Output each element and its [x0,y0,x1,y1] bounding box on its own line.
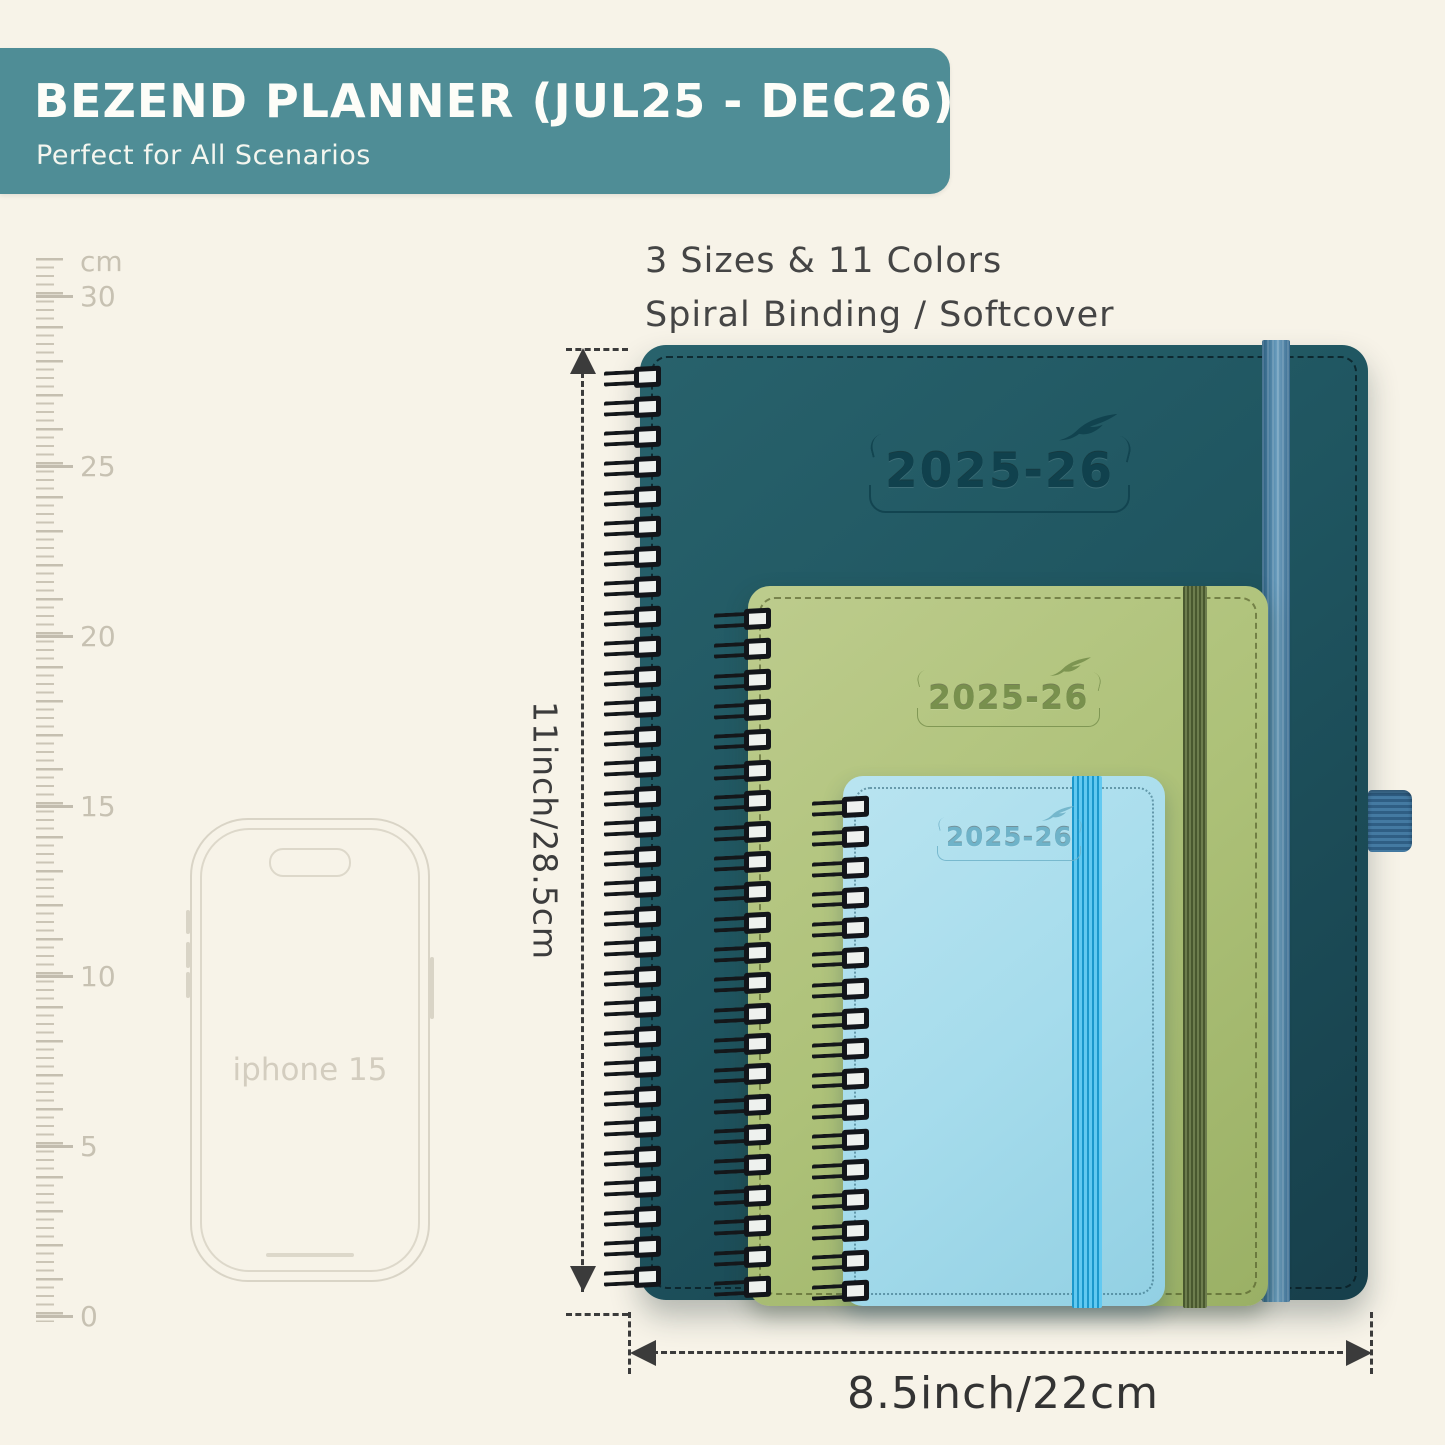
spiral-coil [812,1097,874,1122]
phone-label: iphone 15 [202,1052,418,1088]
spiral-coil [714,819,776,844]
spiral-coil [812,1006,874,1031]
width-arrow-left-icon [630,1340,656,1366]
height-dimension-cap-bottom [566,1313,628,1316]
ruler-label-10: 10 [80,961,150,993]
planner-logo-large: 2025-26 [885,444,1114,499]
spiral-coil [812,946,874,971]
spiral-coil [714,789,776,814]
spiral-coil [714,697,776,722]
spiral-coil [714,910,776,935]
feature-line-binding: Spiral Binding / Softcover [645,288,1115,342]
spiral-coil [812,1127,874,1152]
spiral-coil [604,934,666,959]
spiral-coil [812,1036,874,1061]
spiral-coil [604,694,666,719]
spiral-coil [604,1114,666,1139]
spiral-coil [714,1244,776,1269]
logo-bracket [869,485,1130,513]
spiral-coil [604,724,666,749]
spiral-coil [812,915,874,940]
product-infographic: BEZEND PLANNER (JUL25 - DEC26) Perfect f… [0,0,1445,1445]
spiral-coil [604,1264,666,1289]
spiral-coil [604,1234,666,1259]
width-dimension-label: 8.5inch/22cm [800,1368,1206,1419]
height-dimension-line [581,372,584,1292]
spiral-binding-small [812,796,874,1302]
spiral-coil [812,794,874,819]
spiral-coil [714,637,776,662]
height-arrow-up-icon [570,348,596,374]
spiral-coil [604,1174,666,1199]
feature-text: 3 Sizes & 11 Colors Spiral Binding / Sof… [645,234,1115,342]
spiral-coil [714,1183,776,1208]
phone-side-button [430,957,434,1019]
banner-subtitle: Perfect for All Scenarios [36,140,371,171]
iphone-outline: iphone 15 [190,818,430,1282]
spiral-coil [812,1248,874,1273]
spiral-coil [714,667,776,692]
banner-title: BEZEND PLANNER (JUL25 - DEC26) [34,74,955,128]
spiral-coil [812,1278,874,1303]
spiral-coil [604,1084,666,1109]
spiral-coil [604,904,666,929]
spiral-coil [714,971,776,996]
spiral-coil [604,814,666,839]
width-arrow-right-icon [1346,1340,1372,1366]
spiral-coil [714,1214,776,1239]
spiral-coil [604,1144,666,1169]
height-dimension-label: 11inch/28.5cm [526,681,565,981]
ruler-label-0: 0 [80,1301,150,1333]
spiral-coil [604,364,666,389]
spiral-binding-medium [714,608,776,1298]
ruler-label-15: 15 [80,791,150,823]
spiral-coil [604,964,666,989]
spiral-coil [604,574,666,599]
spiral-coil [812,1218,874,1243]
logo-bracket [917,708,1100,727]
spiral-coil [714,728,776,753]
feature-line-sizes: 3 Sizes & 11 Colors [645,234,1115,288]
spiral-coil [604,844,666,869]
spiral-coil [812,1067,874,1092]
height-arrow-down-icon [570,1266,596,1292]
logo-bracket [937,846,1081,861]
spiral-coil [604,1204,666,1229]
spiral-coil [604,394,666,419]
spiral-coil [604,424,666,449]
spiral-coil [812,825,874,850]
spiral-coil [714,606,776,631]
spiral-coil [604,874,666,899]
phone-volume-up-button [186,942,190,968]
spiral-coil [604,784,666,809]
dynamic-island [269,848,351,877]
spiral-coil [714,1092,776,1117]
spiral-coil [604,604,666,629]
spiral-coil [714,1274,776,1299]
spiral-coil [714,849,776,874]
feather-icon [1045,656,1095,679]
phone-mute-button [186,910,190,934]
pen-loop [1368,790,1412,852]
spiral-coil [714,880,776,905]
spiral-coil [714,758,776,783]
planner-logo-small: 2025-26 [946,823,1073,853]
spiral-binding-large [604,366,666,1288]
phone-screen: iphone 15 [200,828,420,1272]
spiral-coil [604,1054,666,1079]
phone-volume-down-button [186,972,190,998]
ruler-label-25: 25 [80,451,150,483]
ruler-unit-label: cm [80,246,150,278]
width-dimension-line [652,1351,1352,1354]
feather-icon [1052,412,1123,445]
spiral-coil [714,1031,776,1056]
spiral-coil [604,454,666,479]
ruler-label-30: 30 [80,281,150,313]
spiral-coil [604,544,666,569]
feather-icon [1038,805,1077,823]
spiral-coil [812,1188,874,1213]
banner: BEZEND PLANNER (JUL25 - DEC26) Perfect f… [0,48,950,194]
spiral-coil [604,1024,666,1049]
ruler-label-20: 20 [80,621,150,653]
spiral-coil [604,514,666,539]
spiral-coil [812,855,874,880]
spiral-coil [714,1153,776,1178]
spiral-coil [714,1001,776,1026]
ruler-label-5: 5 [80,1131,150,1163]
planner-logo-medium: 2025-26 [928,678,1089,717]
spiral-coil [812,885,874,910]
spiral-coil [604,634,666,659]
spiral-coil [714,940,776,965]
spiral-coil [714,1062,776,1087]
spiral-coil [812,976,874,1001]
spiral-coil [604,754,666,779]
elastic-band-medium [1183,586,1207,1308]
home-indicator [266,1253,354,1257]
ruler-number-ticks [36,295,73,1321]
spiral-coil [604,664,666,689]
spiral-coil [714,1122,776,1147]
spiral-coil [604,484,666,509]
spiral-coil [812,1157,874,1182]
spiral-coil [604,994,666,1019]
